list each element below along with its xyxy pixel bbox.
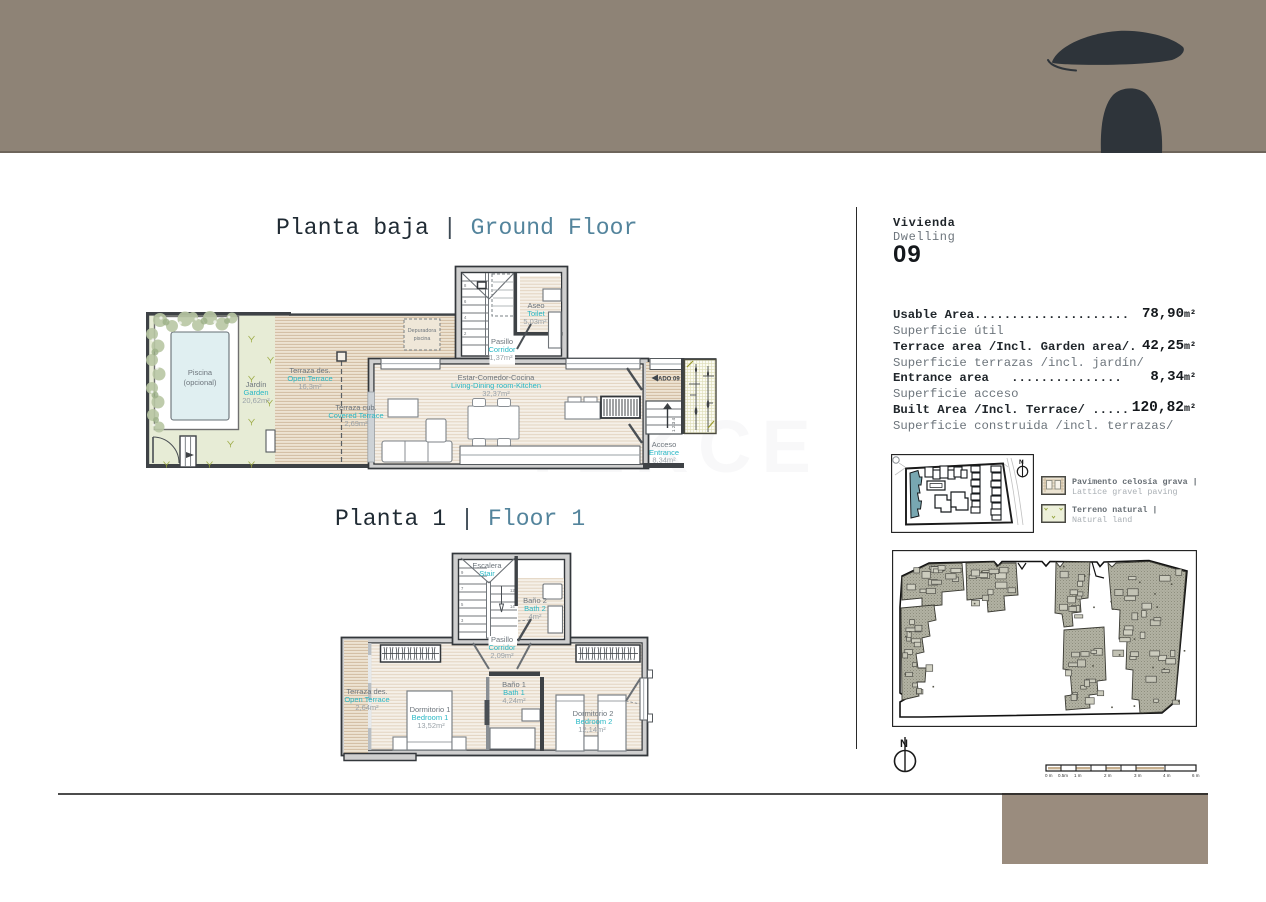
svg-text:2 m: 2 m: [1104, 773, 1112, 778]
svg-text:1 2 3 4: 1 2 3 4: [671, 418, 676, 432]
svg-text:Piscina: Piscina: [188, 368, 213, 377]
svg-text:3 m: 3 m: [1134, 773, 1142, 778]
svg-text:piscina: piscina: [414, 336, 431, 342]
svg-text:2,09m²: 2,09m²: [490, 651, 514, 660]
svg-text:Stair: Stair: [479, 569, 495, 578]
svg-text:4 m: 4 m: [1163, 773, 1171, 778]
svg-text:32,37m²: 32,37m²: [482, 389, 510, 398]
svg-text:N: N: [900, 738, 908, 750]
svg-text:16,3m²: 16,3m²: [298, 382, 322, 391]
svg-text:4,24m²: 4,24m²: [502, 696, 526, 705]
svg-text:(opcional): (opcional): [184, 378, 217, 387]
svg-text:0 m: 0 m: [1045, 773, 1053, 778]
svg-text:N: N: [1019, 459, 1024, 466]
svg-text:Depuradora: Depuradora: [408, 328, 436, 334]
svg-text:13,52m²: 13,52m²: [417, 721, 445, 730]
svg-text:5,03m²: 5,03m²: [523, 317, 547, 326]
svg-text:6 m: 6 m: [1192, 773, 1200, 778]
svg-text:1 m: 1 m: [1074, 773, 1082, 778]
svg-text:20,62m²: 20,62m²: [242, 396, 270, 405]
svg-text:0.5m: 0.5m: [1058, 773, 1068, 778]
svg-text:12,14m²: 12,14m²: [578, 725, 606, 734]
svg-text:2,64m²: 2,64m²: [355, 703, 379, 712]
svg-text:1,37m²: 1,37m²: [489, 353, 513, 362]
svg-text:ADO 09: ADO 09: [658, 377, 680, 383]
svg-text:2,69m²: 2,69m²: [344, 419, 368, 428]
